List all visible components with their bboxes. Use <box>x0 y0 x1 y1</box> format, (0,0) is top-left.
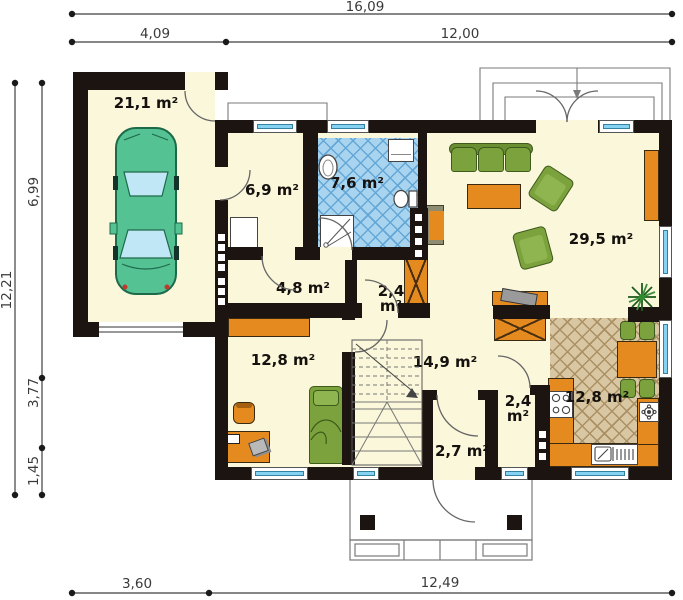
vent <box>415 214 422 221</box>
vent <box>539 431 546 438</box>
monitor <box>227 434 240 444</box>
window <box>659 320 672 378</box>
vent <box>218 264 225 271</box>
window <box>571 467 629 480</box>
vent <box>415 226 422 233</box>
wall <box>73 72 88 337</box>
door-opening <box>362 303 398 318</box>
terrace-arrow <box>573 90 581 99</box>
wall <box>422 390 433 467</box>
garage-floor <box>88 90 215 322</box>
boiler <box>230 217 258 248</box>
wall <box>228 303 345 318</box>
porch-column <box>360 515 375 530</box>
door-opening <box>215 167 228 200</box>
garage-door <box>99 327 183 332</box>
kitchen-table <box>617 341 657 378</box>
vent <box>218 278 225 285</box>
sofa-cushion <box>505 147 531 172</box>
window <box>501 467 528 480</box>
chair <box>620 379 636 398</box>
dim-top-left: 4,09 <box>120 27 190 41</box>
terrace-outline <box>480 68 670 120</box>
vent <box>218 234 225 241</box>
vent <box>415 238 422 245</box>
vent <box>539 442 546 449</box>
wall <box>659 120 672 480</box>
sofa-cushion <box>451 147 477 172</box>
wardrobe <box>228 318 310 337</box>
vent <box>218 244 225 251</box>
door-opening <box>342 320 355 352</box>
chair <box>639 379 655 398</box>
dim-left-lower: 1,45 <box>27 436 41 506</box>
chair <box>620 321 636 340</box>
door-opening <box>437 390 478 400</box>
sofa <box>449 141 533 173</box>
entrance-door-opening <box>433 467 475 480</box>
shower <box>320 215 354 251</box>
window <box>327 120 369 133</box>
dim-top-right: 12,00 <box>425 27 495 41</box>
wall <box>485 390 498 467</box>
dim-left-total: 12,21 <box>0 255 14 325</box>
door-opening <box>185 72 215 90</box>
window-glass <box>257 124 293 129</box>
dim-bottom-right: 12,49 <box>405 576 475 590</box>
chair <box>639 321 655 340</box>
window-glass <box>603 124 630 129</box>
sofa-cushion <box>478 147 504 172</box>
vent <box>415 250 422 257</box>
window <box>253 120 297 133</box>
eaves-outline <box>228 103 327 120</box>
door-opening <box>263 247 295 260</box>
window <box>353 467 379 480</box>
window-glass <box>663 230 668 274</box>
wardrobe <box>494 316 546 341</box>
desk-chair <box>233 402 255 424</box>
window-glass <box>255 471 304 476</box>
dim-top-total: 16,09 <box>330 0 400 14</box>
coffee-table <box>467 184 521 209</box>
wall <box>303 133 318 260</box>
door-opening <box>498 385 530 395</box>
window-glass <box>505 471 524 476</box>
window-glass <box>575 471 625 476</box>
window-glass <box>331 124 365 129</box>
vent <box>218 254 225 261</box>
window <box>251 467 308 480</box>
floor-plan: 21,1 m² 6,9 m² 7,6 m² 29,5 m² 4,8 m² 2,4… <box>0 0 683 600</box>
dim-left-upper: 6,99 <box>27 157 41 227</box>
vent <box>218 288 225 295</box>
wall <box>73 322 99 337</box>
terrace-door-opening <box>536 120 598 133</box>
bed <box>309 386 343 464</box>
window <box>599 120 634 133</box>
sideboard <box>644 150 659 221</box>
window <box>659 226 672 278</box>
vent <box>539 453 546 460</box>
window-glass <box>663 324 668 374</box>
washing-machine <box>388 139 414 162</box>
wall <box>493 305 550 319</box>
porch-outline <box>350 480 532 560</box>
stove <box>549 391 573 418</box>
dim-bottom-left: 3,60 <box>102 577 172 591</box>
kitchen-sink <box>591 444 638 465</box>
door-opening <box>320 247 352 260</box>
wall <box>418 133 427 210</box>
porch-column <box>507 515 522 530</box>
window-glass <box>357 471 375 476</box>
vent <box>218 298 225 305</box>
dim-left-middle: 3,77 <box>27 358 41 428</box>
hob <box>639 402 659 422</box>
